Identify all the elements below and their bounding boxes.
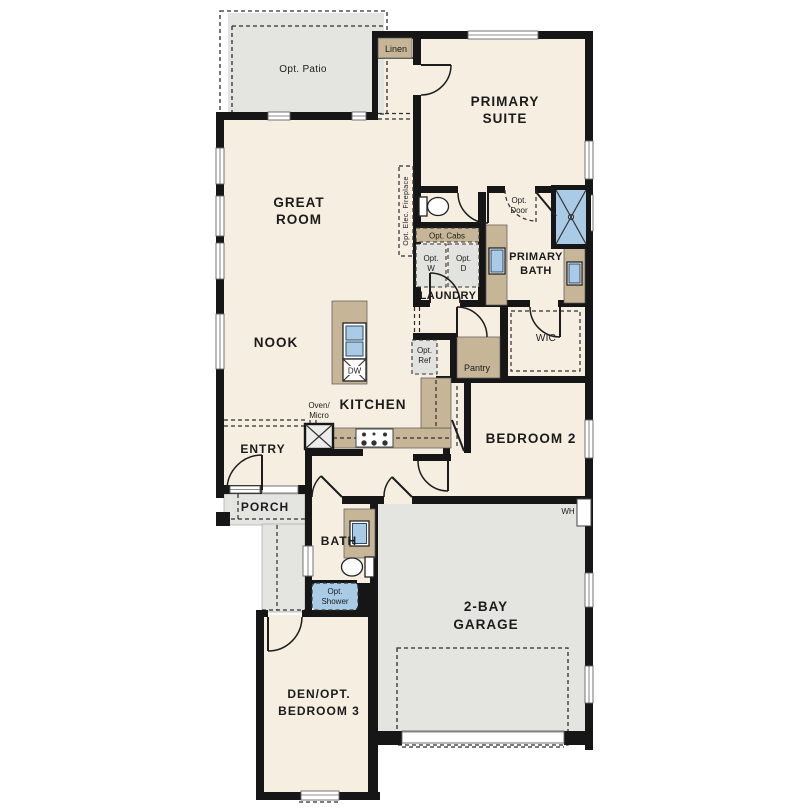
island-sink-basin1	[346, 326, 363, 340]
window	[585, 573, 593, 607]
toilet	[419, 197, 449, 216]
window	[468, 31, 538, 39]
window	[216, 243, 224, 279]
stove	[356, 429, 393, 447]
opt-cabs-label: Opt. Cabs	[429, 232, 465, 241]
den-label-line2: BEDROOM 3	[278, 704, 360, 718]
great-room-label-line1: GREAT	[273, 195, 324, 210]
primary-suite-label-line2: SUITE	[483, 111, 528, 126]
fireplace-label: Opt. Elec. Fireplace	[403, 176, 410, 245]
dishwasher: DW	[343, 359, 366, 381]
nook-label: NOOK	[254, 335, 299, 350]
linen-label: Linen	[385, 44, 407, 54]
garage-label-line2: GARAGE	[453, 617, 518, 632]
entry-door-opening	[262, 486, 298, 493]
opt-ref-label-line1: Opt.	[417, 346, 432, 355]
floor-plan-page: Opt. Patio PORCH 2-BAY GARAGE	[0, 0, 810, 810]
kitchen-label: KITCHEN	[340, 397, 407, 412]
pantry: Pantry	[457, 337, 500, 378]
laundry-label: LAUNDRY	[420, 290, 477, 302]
floor-plan-svg: Opt. Patio PORCH 2-BAY GARAGE	[0, 0, 810, 810]
window	[585, 420, 593, 458]
opt-shower-label-line1: Opt.	[327, 587, 342, 596]
great-room-label-line2: ROOM	[276, 212, 322, 227]
window	[216, 196, 224, 236]
wic-label: WIC	[536, 333, 556, 344]
window	[230, 486, 260, 493]
window	[216, 314, 224, 369]
pantry-label: Pantry	[464, 363, 491, 373]
window	[585, 666, 593, 703]
primary-suite-label-line1: PRIMARY	[471, 94, 540, 109]
opt-ref: Opt. Ref	[412, 340, 437, 374]
opt-cabs: Opt. Cabs	[416, 228, 479, 242]
window	[303, 546, 313, 576]
opt-d-label-line1: Opt.	[456, 254, 471, 263]
toilet	[342, 557, 375, 577]
opt-patio: Opt. Patio	[220, 11, 387, 114]
opt-dryer: Opt. D	[448, 244, 479, 287]
opt-ref-label-line2: Ref	[418, 356, 431, 365]
garage-label-line1: 2-BAY	[464, 599, 508, 614]
window	[352, 112, 366, 120]
primary-bath-label-line1: PRIMARY	[509, 251, 563, 263]
sink	[569, 264, 580, 283]
bath-label: BATH	[321, 534, 357, 548]
entry-label: ENTRY	[240, 442, 285, 456]
oven-micro: Oven/ Micro	[305, 401, 333, 449]
opt-shower: Opt. Shower	[312, 583, 358, 610]
laundry-room: Opt. Cabs Opt. W Opt. D LAUNDRY	[416, 228, 479, 302]
opt-w-label-line2: W	[427, 264, 435, 273]
opt-shower-label-line2: Shower	[321, 597, 348, 606]
opt-w-label-line1: Opt.	[423, 254, 438, 263]
sink	[491, 250, 503, 272]
linen-closet: Linen	[378, 38, 412, 58]
island-sink-basin2	[346, 342, 363, 356]
bedroom2-label: BEDROOM 2	[486, 431, 577, 446]
porch-label: PORCH	[241, 500, 289, 514]
oven-micro-label-line2: Micro	[309, 411, 329, 420]
dw-label: DW	[348, 367, 362, 376]
opt-patio-label: Opt. Patio	[279, 64, 327, 75]
garage: 2-BAY GARAGE	[378, 504, 585, 745]
opt-door-label-line1: Opt.	[511, 196, 526, 205]
window	[216, 148, 224, 184]
window	[299, 791, 341, 802]
opt-door-label-line2: Door	[510, 206, 528, 215]
den-label-line1: DEN/OPT.	[287, 687, 350, 701]
window	[268, 112, 290, 120]
opt-d-label-line2: D	[461, 264, 467, 273]
oven-micro-label-line1: Oven/	[308, 401, 330, 410]
porch: PORCH	[224, 494, 305, 612]
primary-bath-label-line2: BATH	[520, 265, 552, 277]
wh-label: WH	[561, 507, 575, 516]
window	[585, 141, 593, 179]
